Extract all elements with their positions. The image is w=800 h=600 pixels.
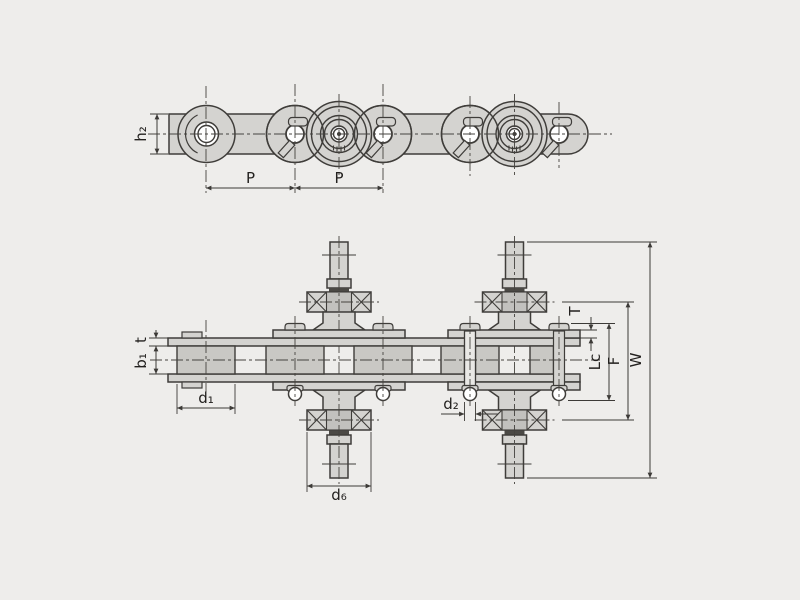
side-view: h₂ P P [132,84,612,193]
label-d1: d₁ [198,389,214,407]
technical-drawing: h₂ P P [0,0,800,600]
label-Lc: Lc [586,354,604,371]
label-h2: h₂ [132,126,150,142]
label-F: F [605,357,623,366]
label-d6: d₆ [331,486,347,504]
label-W: W [627,352,645,367]
plate-step [182,332,202,338]
label-d2: d₂ [443,395,459,413]
inner-plate-top [168,338,580,346]
plate-step [182,382,202,388]
label-T: T [566,306,584,317]
dimension-pitch: P P [206,169,383,188]
label-pitch-1: P [246,169,255,187]
plan-view: t b₁ d₁ d₂ d₆ [132,236,657,504]
label-pitch-2: P [334,169,343,187]
label-b1: b₁ [132,353,150,369]
label-t: t [132,337,150,343]
inner-plate-bottom [168,374,580,382]
attachment-plate-top [273,330,405,338]
dimension-t-b1: t b₁ [132,330,168,374]
